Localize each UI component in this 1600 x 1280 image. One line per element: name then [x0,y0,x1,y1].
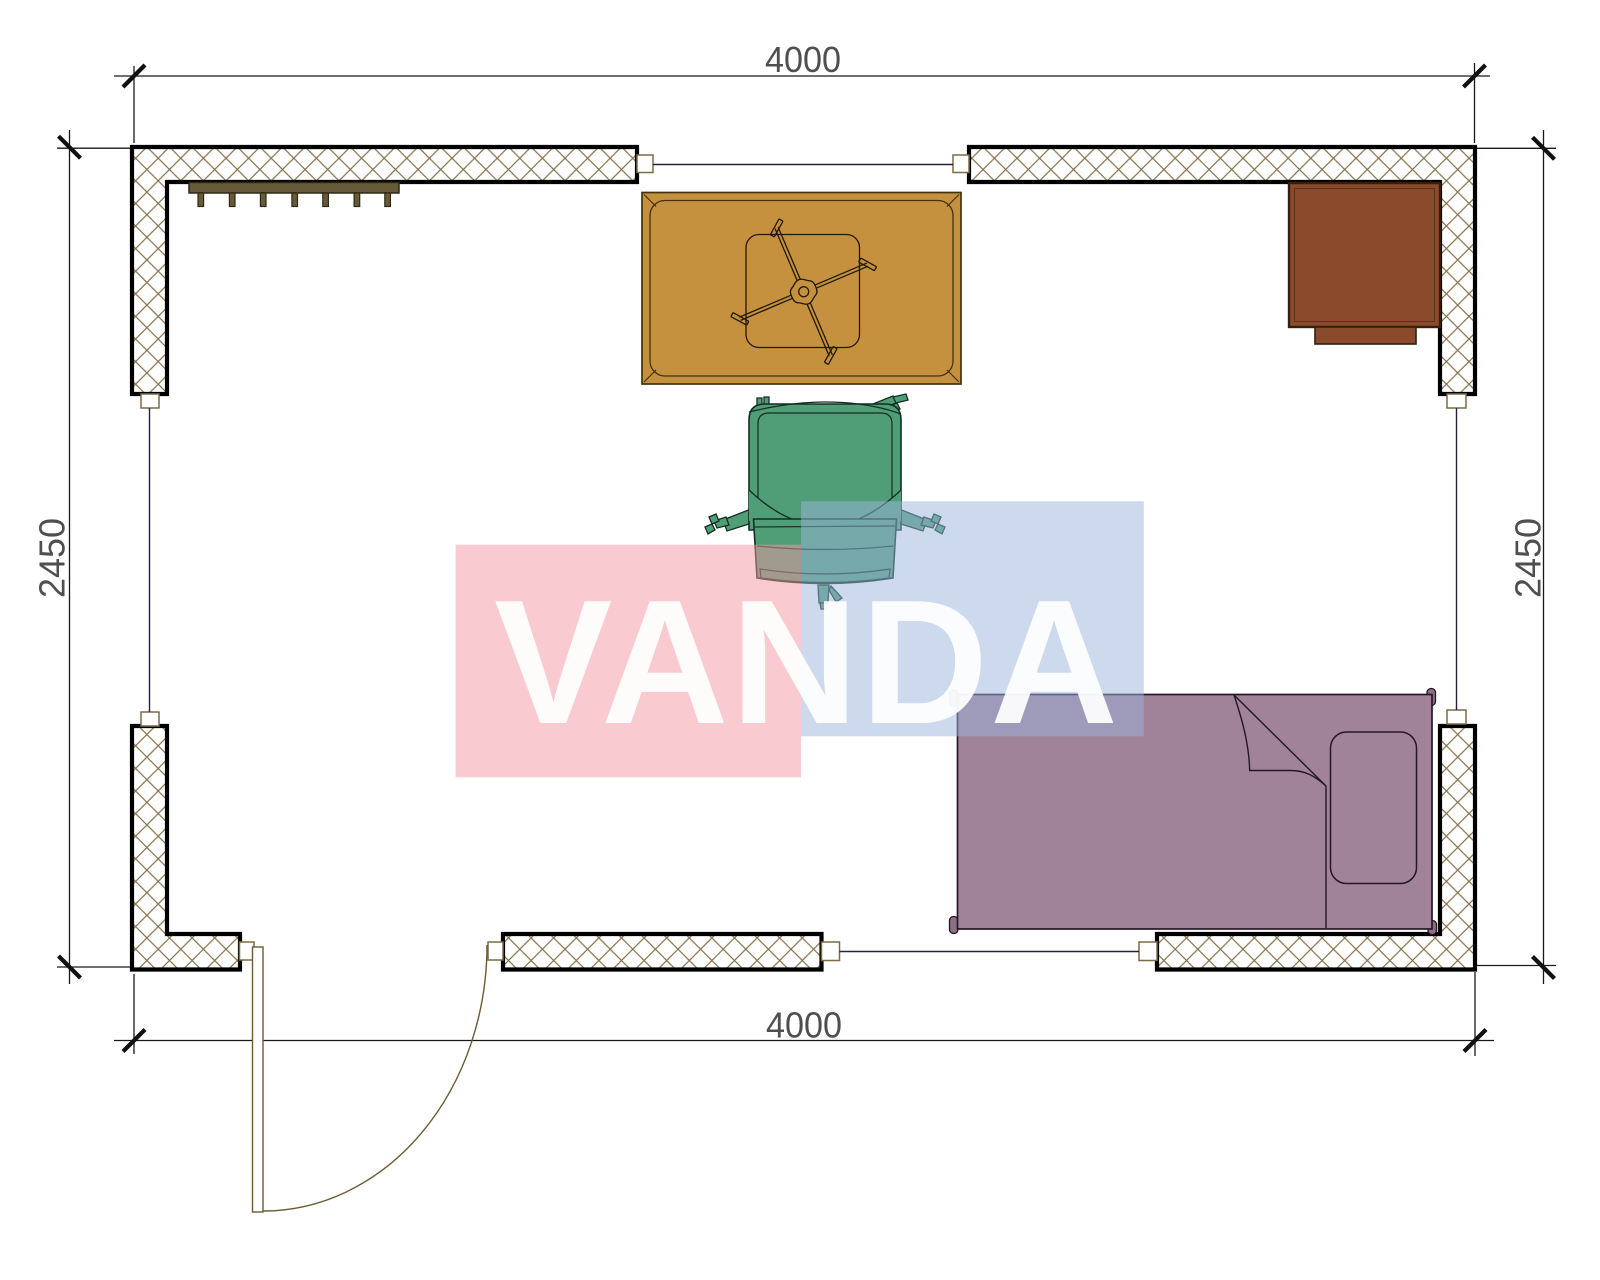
svg-text:4000: 4000 [766,1005,842,1046]
svg-text:2450: 2450 [32,518,73,598]
svg-text:VANDA: VANDA [494,563,1120,761]
svg-text:2450: 2450 [1508,518,1549,598]
svg-text:4000: 4000 [765,39,841,80]
